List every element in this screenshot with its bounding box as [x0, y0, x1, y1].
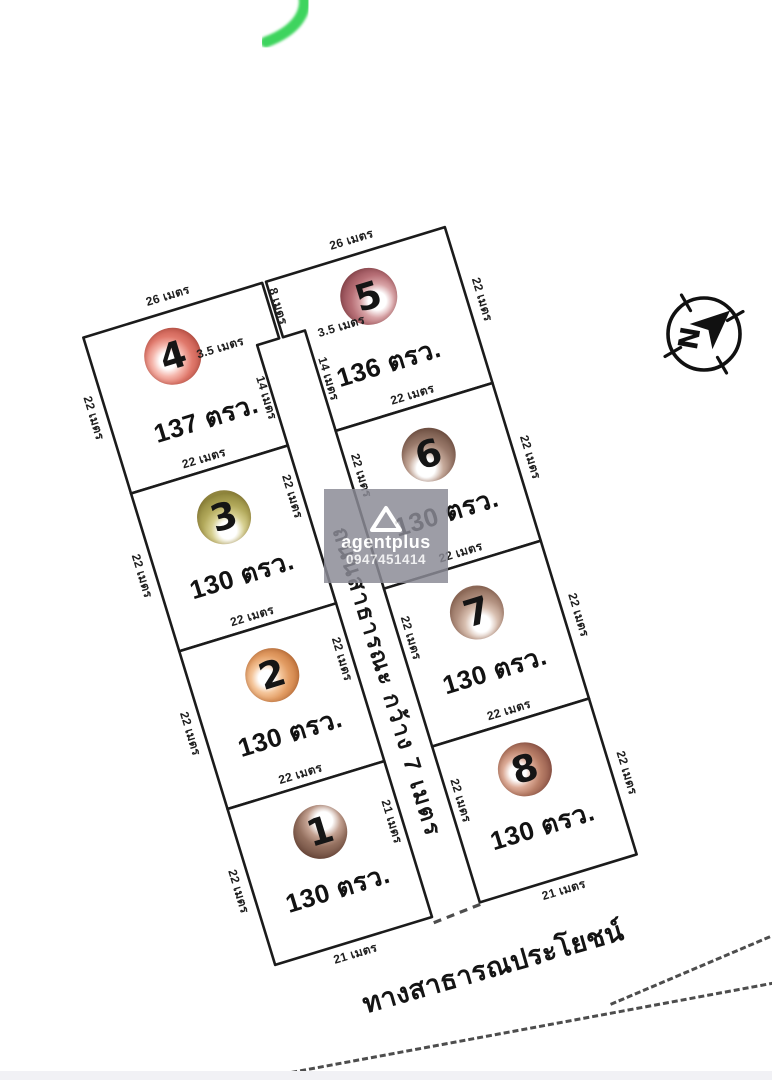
plot-1-marker: 1 [286, 798, 353, 865]
watermark-phone: 0947451414 [346, 552, 426, 567]
plot-7-marker: 7 [443, 578, 510, 645]
plot-8-area: 130 ตรว. [485, 792, 600, 863]
watermark-triangle-logo [369, 505, 403, 533]
bottom-strip [0, 1071, 772, 1080]
plot-3-marker: 3 [190, 483, 257, 550]
plot-2-marker: 2 [238, 641, 305, 708]
watermark-brand: agentplus [341, 533, 431, 553]
watermark: agentplus 0947451414 [324, 489, 448, 583]
plot-3-number: 3 [206, 495, 241, 538]
plot-1-area: 130 ตรว. [281, 854, 396, 925]
site-plan: N 4 137 ตรว. 5 136 ตรว. [0, 0, 772, 1080]
road-end-dashed-line [433, 904, 482, 922]
plot-1-number: 1 [302, 810, 337, 853]
public-way-dashed-line-upper [610, 932, 772, 1006]
plot-4-area: 137 ตรว. [149, 384, 264, 455]
compass-north-letter: N [670, 324, 704, 352]
green-paint-mark [250, 0, 326, 56]
plot-7-area: 130 ตรว. [437, 635, 552, 706]
north-compass: N [658, 291, 750, 383]
plan-rotated-canvas: 4 137 ตรว. 5 136 ตรว. 3 130 ตรว. 2 130 ต… [81, 225, 639, 968]
plot-7-number: 7 [459, 591, 494, 634]
plot-2-area: 130 ตรว. [233, 698, 348, 769]
plot-2-number: 2 [254, 653, 289, 696]
plot-8-marker: 8 [491, 736, 558, 803]
plot-6-number: 6 [411, 433, 446, 476]
plot-8-number: 8 [507, 748, 542, 791]
plot-3-area: 130 ตรว. [184, 540, 299, 611]
plot-6-marker: 6 [395, 421, 462, 488]
plot-4-number: 4 [155, 335, 190, 378]
